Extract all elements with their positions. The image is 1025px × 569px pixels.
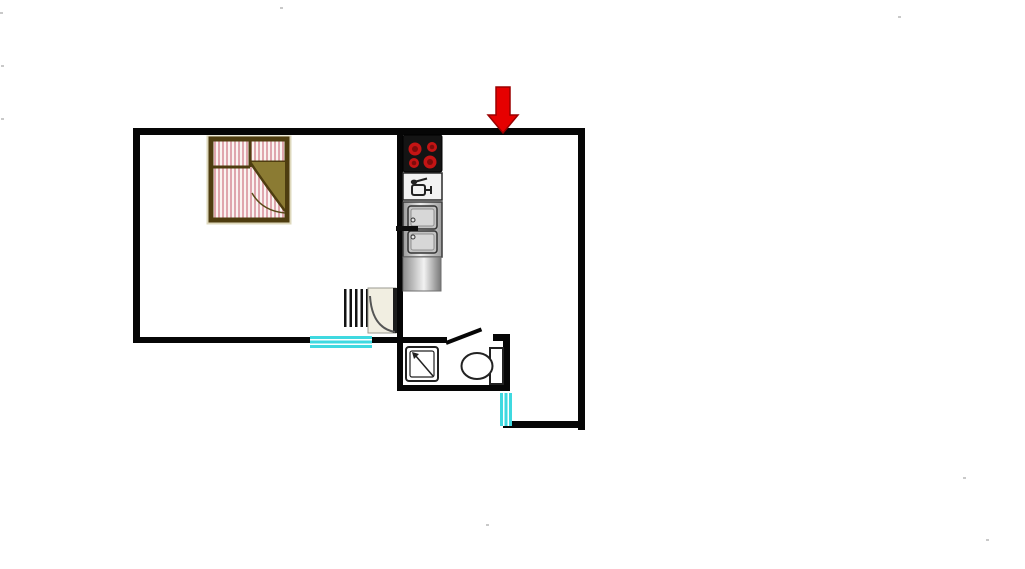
window-east xyxy=(500,393,512,426)
wall-bathroom-top xyxy=(403,337,447,343)
entrance-arrow-icon xyxy=(485,85,521,135)
floorplan-canvas xyxy=(0,0,1025,569)
counter xyxy=(403,257,441,291)
wall-right xyxy=(578,128,585,430)
stove-icon xyxy=(403,135,442,172)
scan-artifact xyxy=(280,7,283,9)
shower-icon xyxy=(404,345,442,385)
scan-artifact xyxy=(1,65,4,67)
radiator-icon xyxy=(344,289,368,327)
room-door-icon xyxy=(367,286,399,336)
scan-artifact xyxy=(986,539,989,541)
scan-artifact xyxy=(1,118,4,120)
scan-artifact xyxy=(486,524,489,526)
kitchen-unit xyxy=(395,133,445,293)
scan-artifact xyxy=(898,16,901,18)
wall-left xyxy=(133,128,140,343)
dishwasher-icon xyxy=(403,173,442,200)
wall-bathroom-left xyxy=(397,337,403,391)
window-south xyxy=(310,336,372,348)
toilet-icon xyxy=(458,344,508,388)
wall-hall-bottom xyxy=(503,421,585,428)
wall-bottom-left-a xyxy=(133,337,310,343)
bed-icon xyxy=(206,135,292,225)
bathroom-door-icon xyxy=(445,328,482,345)
scan-artifact xyxy=(0,12,3,14)
sink-icon xyxy=(396,202,442,257)
scan-artifact xyxy=(963,477,966,479)
